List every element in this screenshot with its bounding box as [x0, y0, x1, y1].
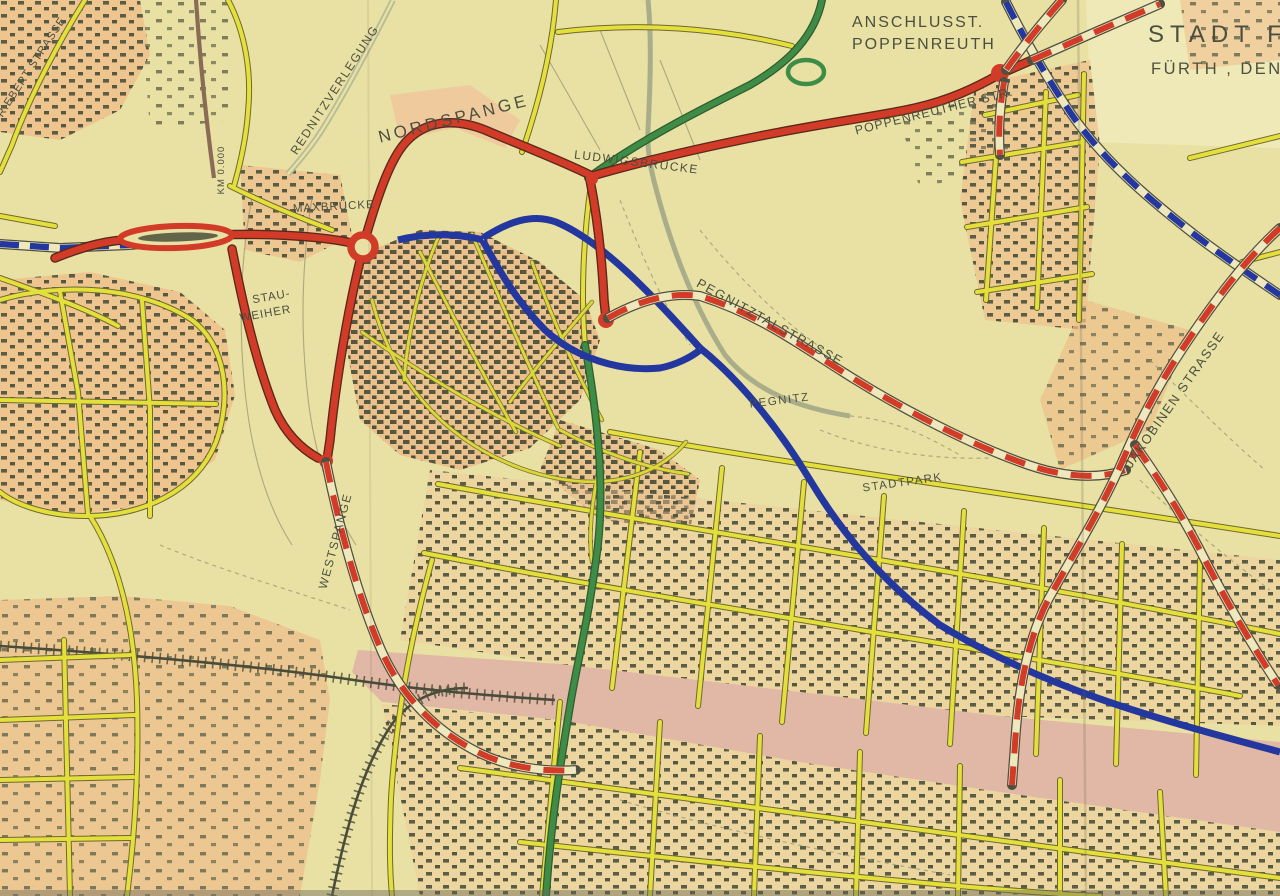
photo-bottom-edge	[0, 890, 1280, 896]
label-anschluss-line2: POPPENREUTH	[852, 36, 996, 53]
title-fuerth-den: FÜRTH , DEN	[1151, 60, 1280, 78]
map-photo-fuerth-plan: STADT FÜ FÜRTH , DEN ANSCHLUSST. POPPENR…	[0, 0, 1280, 896]
label-anschluss-line1: ANSCHLUSST.	[852, 14, 984, 31]
title-stadt: STADT FÜ	[1148, 21, 1280, 48]
maxbruecke-roundabout	[351, 235, 375, 259]
label-km-mark: KM 0.000	[216, 146, 227, 195]
ludwigsbruecke-node	[586, 173, 598, 185]
city-map-canvas: STADT FÜ FÜRTH , DEN ANSCHLUSST. POPPENR…	[0, 0, 1280, 896]
